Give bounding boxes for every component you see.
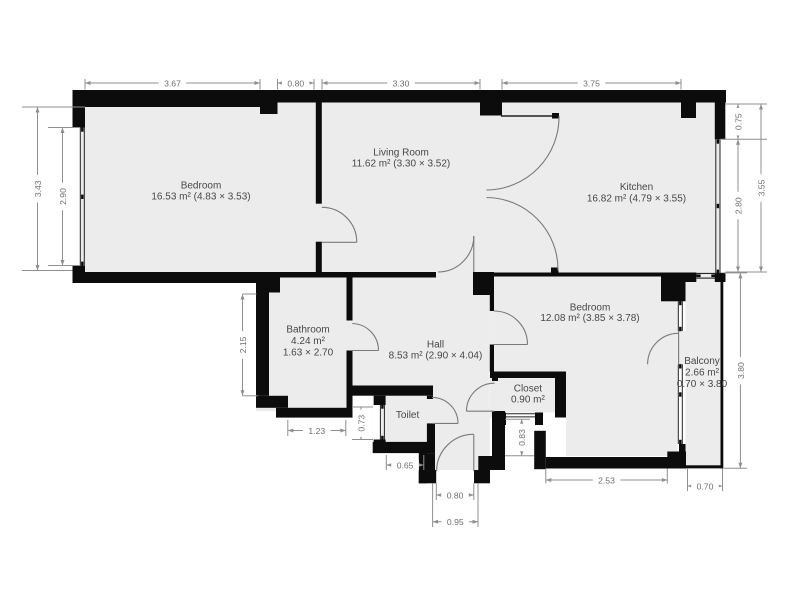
svg-text:3.30: 3.30 bbox=[393, 79, 410, 89]
svg-text:8.53 m² (2.90 × 4.04): 8.53 m² (2.90 × 4.04) bbox=[389, 351, 483, 362]
svg-text:1.23: 1.23 bbox=[308, 426, 325, 436]
svg-text:Hall: Hall bbox=[427, 340, 444, 351]
svg-text:2.66 m²: 2.66 m² bbox=[685, 368, 720, 379]
svg-text:Living Room: Living Room bbox=[373, 147, 429, 158]
svg-text:4.24 m²: 4.24 m² bbox=[291, 336, 326, 347]
svg-text:0.80: 0.80 bbox=[287, 79, 304, 89]
svg-text:0.75: 0.75 bbox=[734, 113, 744, 130]
svg-text:12.08 m² (3.85 × 3.78): 12.08 m² (3.85 × 3.78) bbox=[540, 313, 639, 324]
svg-text:1.63 × 2.70: 1.63 × 2.70 bbox=[283, 348, 334, 359]
svg-text:Balcony: Balcony bbox=[684, 356, 720, 367]
svg-text:0.70 × 3.80: 0.70 × 3.80 bbox=[677, 379, 728, 390]
svg-text:Bedroom: Bedroom bbox=[570, 302, 611, 313]
svg-text:3.55: 3.55 bbox=[757, 179, 767, 196]
svg-text:3.67: 3.67 bbox=[164, 79, 181, 89]
svg-text:Kitchen: Kitchen bbox=[620, 182, 653, 193]
svg-text:Toilet: Toilet bbox=[396, 410, 420, 421]
svg-text:2.53: 2.53 bbox=[598, 476, 615, 486]
svg-text:Bathroom: Bathroom bbox=[286, 325, 329, 336]
svg-text:0.80: 0.80 bbox=[447, 491, 464, 501]
svg-text:3.43: 3.43 bbox=[33, 180, 43, 197]
svg-text:0.73: 0.73 bbox=[357, 415, 367, 432]
svg-text:Bedroom: Bedroom bbox=[181, 181, 222, 192]
svg-text:11.62 m² (3.30 × 3.52): 11.62 m² (3.30 × 3.52) bbox=[352, 158, 450, 169]
svg-text:0.83: 0.83 bbox=[517, 429, 527, 446]
svg-text:2.80: 2.80 bbox=[734, 197, 744, 214]
svg-text:16.53 m² (4.83 × 3.53): 16.53 m² (4.83 × 3.53) bbox=[151, 191, 250, 202]
svg-text:3.80: 3.80 bbox=[736, 362, 746, 379]
svg-text:0.90 m²: 0.90 m² bbox=[511, 395, 546, 406]
svg-text:2.90: 2.90 bbox=[58, 188, 68, 205]
svg-text:0.70: 0.70 bbox=[697, 482, 714, 492]
svg-text:16.82 m² (4.79 × 3.55): 16.82 m² (4.79 × 3.55) bbox=[587, 193, 686, 204]
svg-text:0.95: 0.95 bbox=[447, 517, 464, 527]
svg-text:3.75: 3.75 bbox=[583, 79, 600, 89]
svg-text:0.65: 0.65 bbox=[397, 461, 414, 471]
svg-text:2.15: 2.15 bbox=[238, 336, 248, 353]
svg-text:Closet: Closet bbox=[514, 383, 543, 394]
